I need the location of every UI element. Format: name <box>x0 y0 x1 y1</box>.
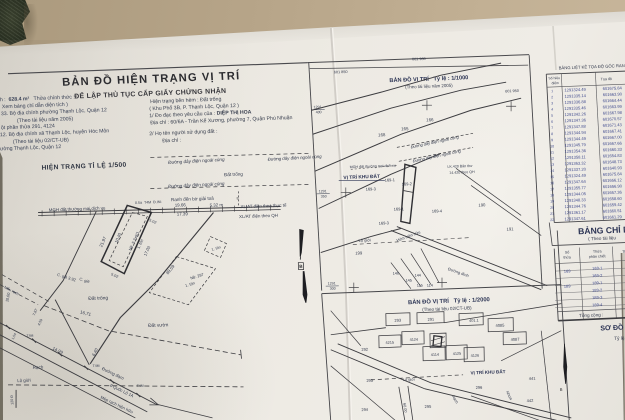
svg-text:Đường dây điện ngoài cùng: Đường dây điện ngoài cùng <box>168 157 225 165</box>
svg-text:4125: 4125 <box>453 352 462 356</box>
svg-text:Nề: 297: Nề: 297 <box>190 272 206 281</box>
svg-text:BẢN ĐỒ VỊ TRÍ Tỷ lệ : 1/2000: BẢN ĐỒ VỊ TRÍ Tỷ lệ : 1/2000 <box>408 295 490 306</box>
svg-text:601671.43: 601671.43 <box>603 122 623 128</box>
svg-text:1: 1 <box>551 89 553 93</box>
svg-text:169-1: 169-1 <box>394 206 405 211</box>
svg-text:LK.420 Bản thư: LK.420 Bản thư <box>447 164 473 169</box>
svg-text:4124: 4124 <box>410 338 419 342</box>
svg-text:XL/AT điện theo QH: XL/AT điện theo QH <box>239 213 278 219</box>
svg-text:145: 145 <box>406 279 413 283</box>
svg-text:115: 115 <box>417 284 423 288</box>
svg-text:601661.29: 601661.29 <box>603 214 623 220</box>
svg-text:1291337.20: 1291337.20 <box>564 167 586 173</box>
svg-text:293: 293 <box>394 318 402 323</box>
svg-text:17.39: 17.39 <box>177 211 189 216</box>
svg-text:401.1: 401.1 <box>469 319 479 323</box>
svg-text:1291358.11: 1291358.11 <box>565 154 587 160</box>
svg-text:601675.84: 601675.84 <box>603 85 623 91</box>
svg-text:Tọa độ: Tọa độ <box>601 77 612 81</box>
svg-text:Địa chỉ :: Địa chỉ : <box>162 137 181 145</box>
svg-text:T4M: T4M <box>93 364 100 368</box>
svg-text:5: 5 <box>551 114 553 118</box>
svg-text:Đường đạm: Đường đạm <box>101 366 125 381</box>
svg-text:4126: 4126 <box>471 354 480 358</box>
svg-text:296: 296 <box>475 385 483 390</box>
svg-text:HIỆN TRẠNG TỈ LỆ 1/500: HIỆN TRẠNG TỈ LỆ 1/500 <box>41 160 126 172</box>
svg-text:601667.00: 601667.00 <box>603 134 623 140</box>
svg-text:VỊ TRÍ KHU ĐẤT: VỊ TRÍ KHU ĐẤT <box>343 172 380 181</box>
svg-text:1. tôn: 1. tôn <box>184 280 195 288</box>
svg-text:189-2: 189-2 <box>592 287 603 292</box>
svg-text:601659.42: 601659.42 <box>603 202 623 208</box>
svg-text:189-1: 189-1 <box>592 280 603 285</box>
svg-text:11: 11 <box>550 150 554 154</box>
svg-text:0.5a T4M Đ.INI: 0.5a T4M Đ.INI <box>135 200 162 205</box>
svg-text:146: 146 <box>393 271 400 275</box>
svg-text:22: 22 <box>550 218 554 222</box>
svg-text:ường Thạnh Lộc, Quận 12: ường Thạnh Lộc, Quận 12 <box>0 144 61 152</box>
svg-text:Đường dây điện ngoài cùng: Đường dây điện ngoài cùng <box>412 148 462 163</box>
svg-text:10,00: 10,00 <box>5 292 11 302</box>
svg-text:601663.90: 601663.90 <box>603 91 623 97</box>
svg-text:20: 20 <box>550 206 554 210</box>
svg-text:400: 400 <box>316 110 322 114</box>
svg-text:144: 144 <box>415 273 422 277</box>
svg-text:6: 6 <box>551 120 553 124</box>
svg-text:1291348.33: 1291348.33 <box>564 197 586 203</box>
svg-text:SƠ ĐỒ VỊ T: SƠ ĐỒ VỊ T <box>600 321 625 332</box>
svg-text:601667.66: 601667.66 <box>603 141 623 147</box>
svg-text:1291: 1291 <box>319 189 327 193</box>
svg-text:2: 2 <box>551 95 553 99</box>
svg-text:601 850: 601 850 <box>334 70 348 75</box>
svg-text:169-4: 169-4 <box>432 208 443 213</box>
svg-text:12: 12 <box>550 157 554 161</box>
svg-text:601675.84: 601675.84 <box>603 171 623 177</box>
svg-text:1291345.79: 1291345.79 <box>564 142 586 148</box>
svg-text:166: 166 <box>426 117 434 122</box>
svg-text:10: 10 <box>550 144 554 148</box>
svg-text:T4M: T4M <box>26 334 33 338</box>
svg-text:ố Quốc Lộ 1A: ố Quốc Lộ 1A <box>109 383 135 399</box>
svg-text:1291347.64: 1291347.64 <box>564 179 586 185</box>
svg-text:19: 19 <box>550 199 554 203</box>
svg-text:295: 295 <box>424 404 432 409</box>
svg-text:169-2: 169-2 <box>592 273 603 278</box>
svg-text:292: 292 <box>361 347 369 352</box>
svg-text:601660.33: 601660.33 <box>603 147 623 153</box>
svg-text:VỊ TRÍ KHU ĐẤT: VỊ TRÍ KHU ĐẤT <box>470 367 506 375</box>
svg-text:601663.99: 601663.99 <box>603 104 623 110</box>
svg-text:601656.12: 601656.12 <box>603 177 623 183</box>
svg-text:293: 293 <box>366 378 374 383</box>
svg-text:Lộ giới: Lộ giới <box>403 378 415 382</box>
svg-text:phân chiết: phân chiết <box>589 254 606 259</box>
svg-text:14,99: 14,99 <box>52 346 65 356</box>
svg-text:601660.51: 601660.51 <box>603 208 623 214</box>
svg-text:Mép rạch hiện hữu: Mép rạch hiện hữu <box>100 395 135 415</box>
svg-text:1291335.46: 1291335.46 <box>564 105 586 111</box>
svg-text:191: 191 <box>506 226 514 231</box>
svg-text:350: 350 <box>321 194 327 198</box>
svg-text:B: B <box>299 264 303 269</box>
svg-text:601664.44: 601664.44 <box>603 98 623 104</box>
svg-text:1291344.49: 1291344.49 <box>564 136 586 142</box>
svg-text:190: 190 <box>478 202 486 207</box>
svg-text:1291: 1291 <box>328 281 336 285</box>
svg-text:169-1: 169-1 <box>592 265 603 270</box>
svg-text:601670.57: 601670.57 <box>603 116 623 122</box>
svg-text:165: 165 <box>401 126 409 131</box>
svg-text:4215: 4215 <box>385 341 394 345</box>
svg-text:601657.36: 601657.36 <box>603 190 623 196</box>
svg-text:1,54: 1,54 <box>11 332 17 340</box>
svg-text:Đường đình: Đường đình <box>447 266 469 278</box>
svg-text:601656.90: 601656.90 <box>603 183 623 189</box>
svg-text:16: 16 <box>550 181 554 185</box>
svg-text:9: 9 <box>551 138 553 142</box>
svg-text:13: 13 <box>550 163 554 167</box>
svg-text:BẢN ĐỒ HIỆN TRẠNG VỊ TRÍ: BẢN ĐỒ HIỆN TRẠNG VỊ TRÍ <box>62 69 241 89</box>
svg-text:601640.93: 601640.93 <box>603 165 623 171</box>
svg-text:1291344.94: 1291344.94 <box>564 130 586 136</box>
svg-text:4085: 4085 <box>495 323 505 328</box>
svg-text:169: 169 <box>564 268 572 273</box>
svg-text:Tổng cộng :: Tổng cộng : <box>579 311 604 318</box>
svg-text:Đất vườn: Đất vườn <box>148 322 169 329</box>
svg-text:B: B <box>560 387 563 392</box>
svg-text:Lộ giới: Lộ giới <box>17 378 31 383</box>
svg-text:XL/AT điện theo thực tế: XL/AT điện theo thực tế <box>240 203 287 210</box>
svg-text:Tỷ lệ: Tỷ lệ <box>614 335 625 342</box>
svg-text:169-3: 169-3 <box>365 186 376 191</box>
svg-text:1291361.17: 1291361.17 <box>564 209 586 215</box>
svg-text:3: 3 <box>551 101 553 105</box>
svg-text:120 Đ: 120 Đ <box>10 395 15 405</box>
svg-text:21: 21 <box>550 212 554 216</box>
svg-text:BẢNG LIỆT KÊ TỌA ĐỘ GÓC RANH: BẢNG LIỆT KÊ TỌA ĐỘ GÓC RANH <box>559 63 625 71</box>
svg-text:1291324.49: 1291324.49 <box>564 173 586 179</box>
svg-text:1291347.61: 1291347.61 <box>564 216 586 222</box>
svg-text:19.66: 19.66 <box>175 202 187 207</box>
svg-text:Lộ giới: Lộ giới <box>358 237 371 242</box>
svg-text:Đường dây điện ngoài cùng: Đường dây điện ngoài cùng <box>168 181 225 189</box>
svg-text:4087: 4087 <box>510 337 520 342</box>
svg-text:Nhựa: Nhựa <box>505 390 513 401</box>
svg-text:291: 291 <box>427 317 435 322</box>
svg-text:441: 441 <box>529 376 537 381</box>
svg-text:5.02: 5.02 <box>110 272 118 279</box>
svg-text:C. giẻ: C. giẻ <box>79 276 91 284</box>
svg-text:8: 8 <box>551 132 553 136</box>
svg-text:601 950: 601 950 <box>505 89 519 94</box>
svg-text:17: 17 <box>550 187 554 191</box>
svg-text:1291324.49: 1291324.49 <box>564 87 586 93</box>
svg-text:1291363.32: 1291363.32 <box>564 160 586 166</box>
svg-text:4114: 4114 <box>431 353 439 357</box>
svg-text:169-3: 169-3 <box>379 220 390 225</box>
svg-text:300: 300 <box>330 287 336 291</box>
svg-text:4: 4 <box>551 108 553 112</box>
svg-text:1291335.14: 1291335.14 <box>564 93 586 99</box>
svg-text:2/ Họ tên người sử dụng đất :: 2/ Họ tên người sử dụng đất : <box>149 128 218 138</box>
svg-text:17.03: 17.03 <box>143 245 152 257</box>
svg-text:21.97: 21.97 <box>98 235 107 248</box>
svg-text:1291344.05: 1291344.05 <box>564 191 586 197</box>
svg-text:5.32 m: 5.32 m <box>209 202 223 208</box>
svg-text:18: 18 <box>550 193 554 197</box>
svg-text:Đất trống: Đất trống <box>88 295 108 302</box>
svg-text:1291355.77: 1291355.77 <box>564 185 586 191</box>
svg-text:8: 8 <box>236 196 238 200</box>
svg-text:601658.60: 601658.60 <box>603 196 623 202</box>
svg-text:Ranh đến bờ giải toả: Ranh đến bờ giải toả <box>171 196 215 203</box>
svg-text:điểm: điểm <box>551 81 559 85</box>
svg-text:1. tôn: 1. tôn <box>211 245 221 252</box>
svg-text:199: 199 <box>355 250 363 255</box>
svg-text:14: 14 <box>550 169 554 173</box>
svg-text:MGH đất thường mại dịch vụ: MGH đất thường mại dịch vụ <box>350 164 396 170</box>
svg-text:442: 442 <box>527 398 535 403</box>
svg-text:Số: Số <box>565 250 570 254</box>
svg-text:(Theo tài liệu 02/CT-UB): (Theo tài liệu 02/CT-UB) <box>422 305 472 312</box>
svg-text:189-3: 189-3 <box>592 295 603 300</box>
svg-text:BẢNG CHỈ DẪN: BẢNG CHỈ DẪN <box>578 223 625 236</box>
svg-text:7: 7 <box>551 126 553 130</box>
svg-text:4,50: 4,50 <box>37 318 43 326</box>
svg-text:Đường dây điện ngoài cùng: Đường dây điện ngoài cùng <box>410 134 460 149</box>
svg-text:169-1: 169-1 <box>384 177 395 182</box>
svg-text:168: 168 <box>378 132 386 137</box>
svg-text:Số hiệu: Số hiệu <box>548 76 560 80</box>
svg-text:Thửa: Thửa <box>593 249 602 253</box>
svg-text:5.02: 5.02 <box>149 218 157 225</box>
svg-text:Rạch: Rạch <box>32 365 43 370</box>
svg-text:189-4: 189-4 <box>592 302 603 307</box>
svg-text:1291347.36: 1291347.36 <box>564 117 586 123</box>
svg-text:601667.98: 601667.98 <box>603 110 623 116</box>
svg-text:( Theo tài liệu: ( Theo tài liệu <box>588 235 616 241</box>
svg-text:114: 114 <box>427 284 433 288</box>
svg-text:601648.73: 601648.73 <box>603 159 623 165</box>
svg-text:1291344.76: 1291344.76 <box>564 203 586 209</box>
svg-text:15: 15 <box>550 175 554 179</box>
svg-text:1291336.88: 1291336.88 <box>564 99 586 105</box>
svg-text:601654.83: 601654.83 <box>603 153 623 159</box>
svg-text:7,87: 7,87 <box>32 308 38 316</box>
svg-text:169-2: 169-2 <box>402 181 413 186</box>
svg-text:189: 189 <box>564 283 572 288</box>
svg-text:1291347.88: 1291347.88 <box>564 124 586 130</box>
svg-text:thửa: thửa <box>563 255 571 259</box>
svg-text:1291354.36: 1291354.36 <box>564 148 586 154</box>
svg-text:601667.41: 601667.41 <box>603 128 623 134</box>
svg-text:294: 294 <box>361 407 369 412</box>
svg-text:001 900: 001 900 <box>412 57 426 62</box>
svg-text:16,71: 16,71 <box>80 309 92 317</box>
svg-text:1291342.26: 1291342.26 <box>564 111 586 117</box>
svg-text:Đất trống: Đất trống <box>224 172 244 178</box>
